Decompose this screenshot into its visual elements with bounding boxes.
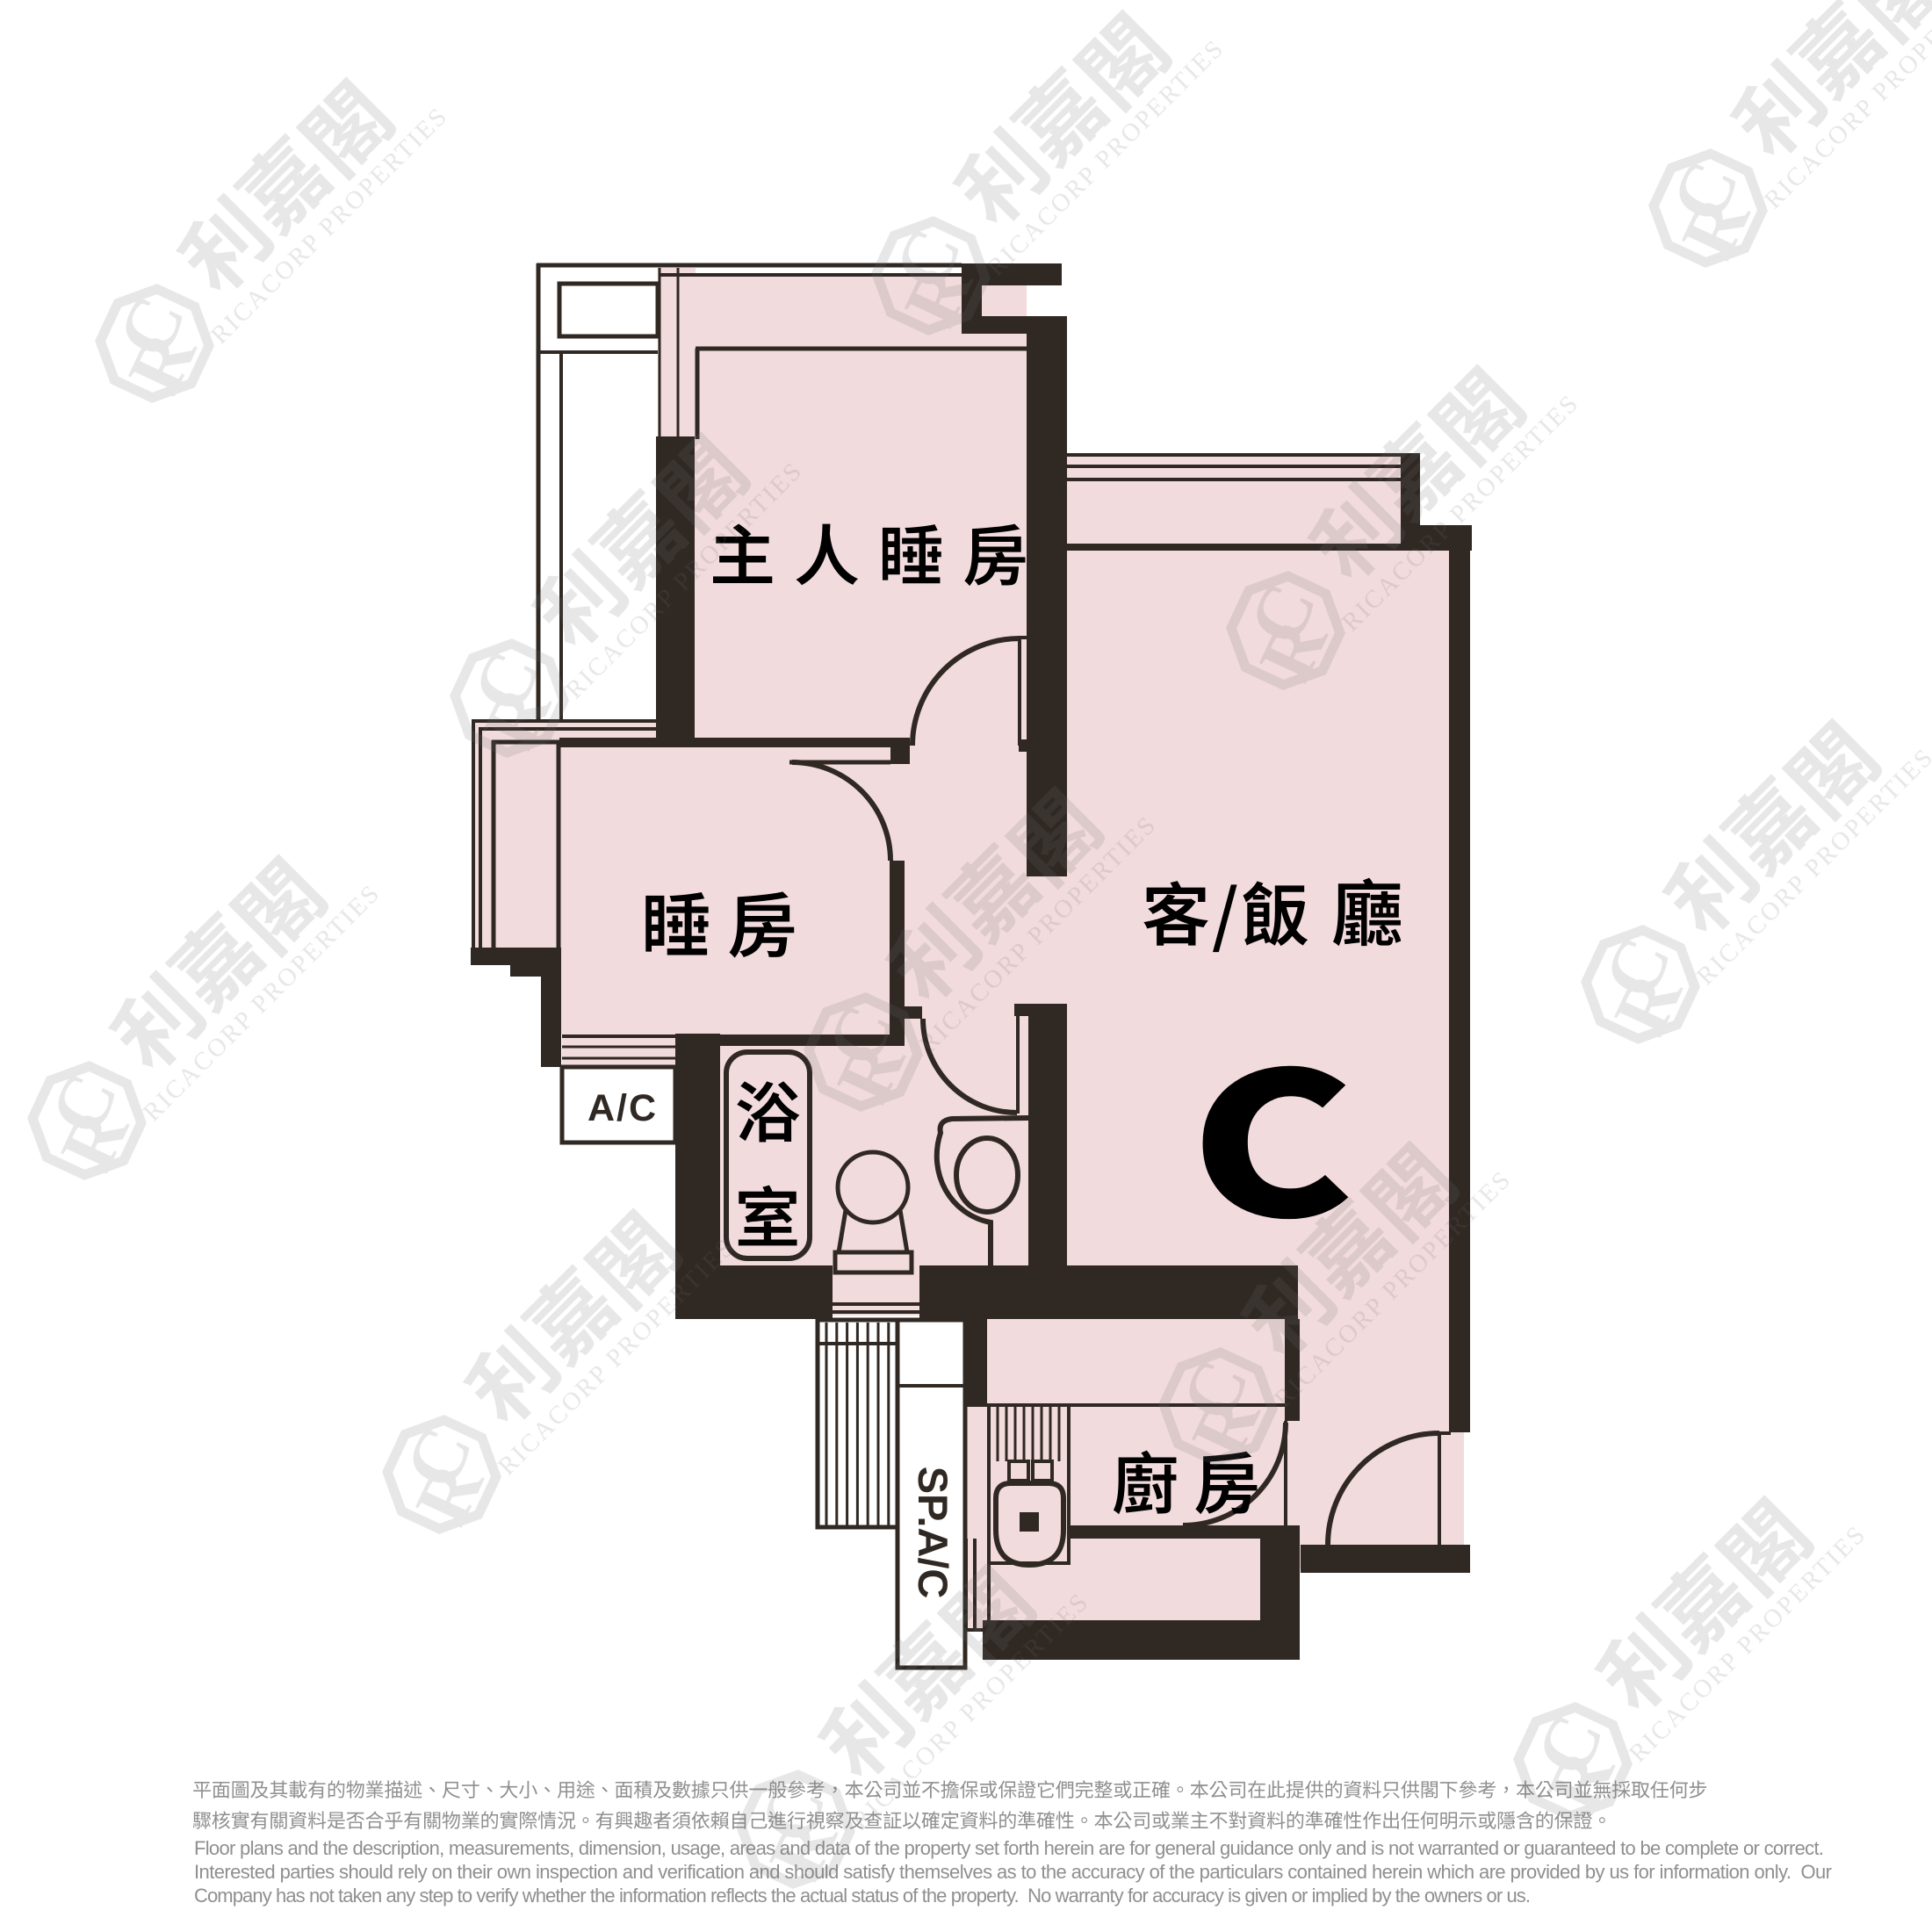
svg-text:Company has not taken any step: Company has not taken any step to verify… [194, 1885, 1531, 1907]
svg-text:A/C: A/C [588, 1087, 658, 1129]
svg-text:Interested parties should rely: Interested parties should rely on their … [194, 1861, 1832, 1883]
svg-text:SP.A/C: SP.A/C [910, 1467, 956, 1599]
svg-text:Floor plans and the descriptio: Floor plans and the description, measure… [194, 1837, 1824, 1859]
